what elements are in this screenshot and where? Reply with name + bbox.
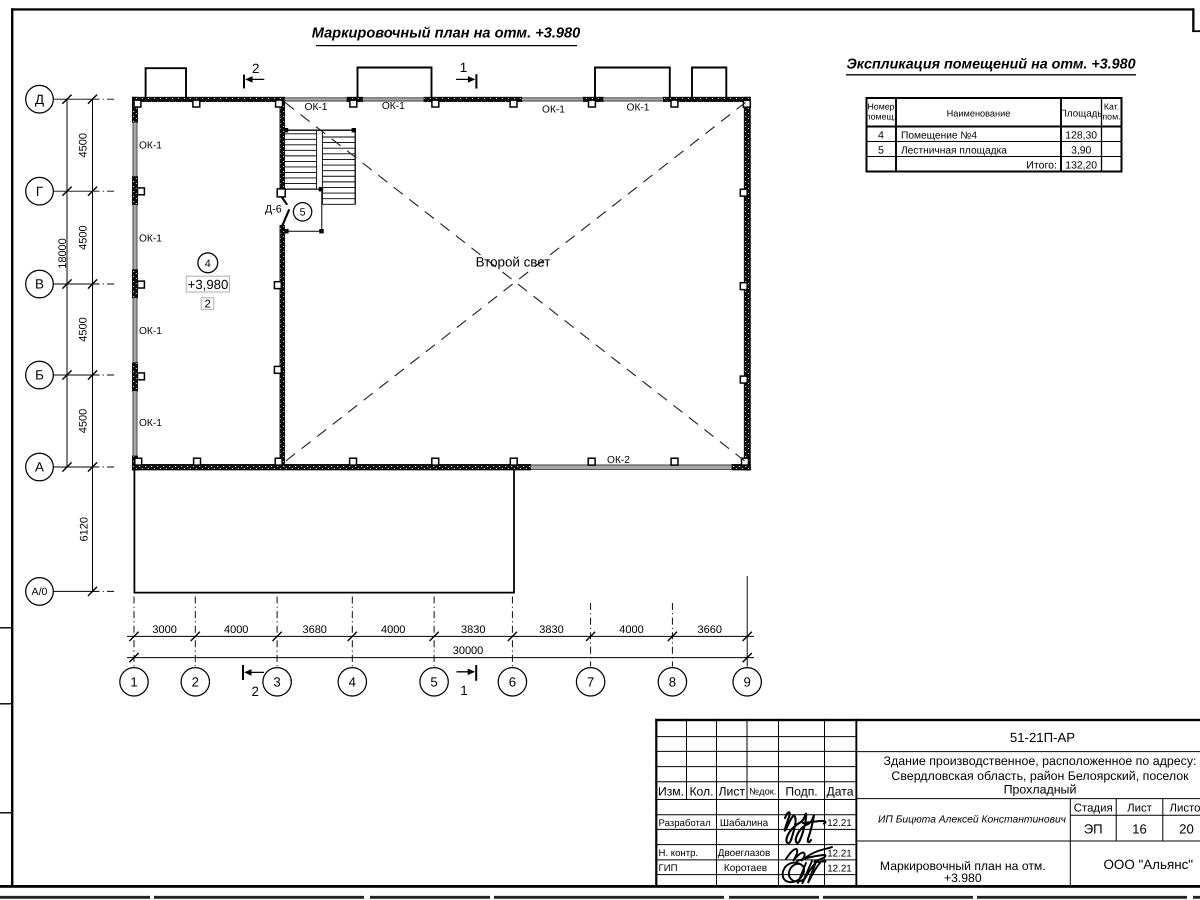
svg-text:4500: 4500 <box>78 225 90 249</box>
svg-text:2: 2 <box>192 675 199 690</box>
svg-text:ОК-1: ОК-1 <box>139 326 162 337</box>
svg-text:Б: Б <box>35 368 44 383</box>
svg-text:1: 1 <box>460 60 467 75</box>
svg-text:16: 16 <box>1132 822 1147 837</box>
svg-text:Разработал: Разработал <box>659 818 711 829</box>
svg-text:6120: 6120 <box>79 517 91 541</box>
svg-text:Кат.: Кат. <box>1104 102 1119 112</box>
svg-text:ОК-1: ОК-1 <box>305 102 328 113</box>
svg-text:Листов: Листов <box>1169 802 1200 814</box>
svg-text:128,30: 128,30 <box>1065 130 1097 141</box>
svg-text:+3,980: +3,980 <box>188 277 229 292</box>
svg-text:12.21: 12.21 <box>827 848 852 859</box>
svg-text:ООО "Альянс": ООО "Альянс" <box>1104 857 1194 872</box>
svg-text:Маркировочный план на отм. +3.: Маркировочный план на отм. +3.980 <box>312 26 581 42</box>
svg-text:ЭП: ЭП <box>1084 822 1103 837</box>
svg-text:ИП Бицюта Алексей Константинов: ИП Бицюта Алексей Константинович <box>878 815 1067 826</box>
svg-text:А: А <box>35 460 44 475</box>
svg-text:4500: 4500 <box>78 133 90 157</box>
svg-text:пом.: пом. <box>1102 112 1120 122</box>
svg-text:Н. контр.: Н. контр. <box>659 848 699 859</box>
svg-text:4: 4 <box>878 129 884 141</box>
svg-text:30000: 30000 <box>453 645 484 657</box>
svg-text:3680: 3680 <box>302 624 326 636</box>
svg-text:ОК-1: ОК-1 <box>542 105 565 116</box>
svg-text:Шабалина: Шабалина <box>720 818 769 829</box>
svg-text:5: 5 <box>430 675 437 690</box>
svg-text:3,90: 3,90 <box>1071 145 1091 156</box>
svg-text:Изм.: Изм. <box>658 784 684 798</box>
svg-text:4500: 4500 <box>78 409 90 433</box>
svg-text:3: 3 <box>273 675 280 690</box>
svg-text:Подп.: Подп. <box>785 784 817 798</box>
svg-text:Лист: Лист <box>1127 802 1153 814</box>
svg-text:12.21: 12.21 <box>827 863 852 874</box>
svg-text:1: 1 <box>460 683 467 698</box>
svg-text:Номер: Номер <box>867 102 894 112</box>
svg-text:помещ.: помещ. <box>866 112 896 122</box>
svg-text:ОК-1: ОК-1 <box>139 418 162 429</box>
svg-text:ГИП: ГИП <box>659 863 678 874</box>
svg-text:+3.980: +3.980 <box>944 871 982 885</box>
svg-text:1: 1 <box>130 675 137 690</box>
svg-text:4500: 4500 <box>78 317 90 341</box>
svg-text:ОК-2: ОК-2 <box>607 455 630 466</box>
svg-text:Наименование: Наименование <box>947 109 1011 119</box>
svg-text:9: 9 <box>744 675 751 690</box>
svg-text:3830: 3830 <box>461 624 485 636</box>
svg-text:6: 6 <box>509 675 516 690</box>
svg-text:Лист: Лист <box>719 784 746 798</box>
svg-text:Второй свет: Второй свет <box>476 254 551 269</box>
svg-text:20: 20 <box>1179 822 1194 837</box>
svg-text:Экспликация помещений на отм.: Экспликация помещений на отм. +3.980 <box>846 56 1135 72</box>
svg-text:Помещение №4: Помещение №4 <box>901 130 977 141</box>
svg-text:2: 2 <box>252 61 259 76</box>
svg-text:8: 8 <box>669 675 676 690</box>
svg-text:Лестничная площадка: Лестничная площадка <box>901 145 1007 156</box>
svg-text:№док.: №док. <box>749 786 776 796</box>
svg-text:3660: 3660 <box>698 624 722 636</box>
svg-text:Дата: Дата <box>827 784 854 798</box>
svg-text:Коротаев: Коротаев <box>724 863 767 874</box>
svg-text:Кол.: Кол. <box>689 784 713 798</box>
svg-text:4000: 4000 <box>381 624 405 636</box>
svg-text:2: 2 <box>251 684 258 699</box>
svg-text:4000: 4000 <box>224 624 248 636</box>
svg-text:18000: 18000 <box>57 238 69 269</box>
svg-text:В: В <box>35 277 44 292</box>
svg-text:Д-6: Д-6 <box>265 203 282 215</box>
svg-text:51-21П-АР: 51-21П-АР <box>1010 730 1075 745</box>
svg-text:ОК-1: ОК-1 <box>627 103 650 114</box>
svg-text:132,20: 132,20 <box>1065 160 1097 171</box>
svg-text:Площадь: Площадь <box>1060 109 1103 120</box>
svg-text:3830: 3830 <box>539 624 563 636</box>
svg-text:А/0: А/0 <box>32 586 48 598</box>
svg-text:3000: 3000 <box>152 624 176 636</box>
svg-text:Двоеглазов: Двоеглазов <box>718 848 771 859</box>
svg-text:Д: Д <box>35 92 44 107</box>
svg-text:Прохладный: Прохладный <box>1004 783 1077 797</box>
svg-text:4: 4 <box>205 258 211 270</box>
svg-text:Свердловская область, район Бе: Свердловская область, район Белоярский, … <box>891 769 1189 783</box>
svg-text:4: 4 <box>349 675 356 690</box>
svg-text:ОК-1: ОК-1 <box>382 101 405 112</box>
svg-text:12.21: 12.21 <box>827 818 852 829</box>
svg-text:Стадия: Стадия <box>1074 802 1113 814</box>
svg-text:5: 5 <box>300 207 306 219</box>
svg-text:ОК-1: ОК-1 <box>139 233 162 244</box>
svg-text:4000: 4000 <box>619 624 643 636</box>
svg-text:5: 5 <box>878 144 884 156</box>
svg-text:7: 7 <box>587 675 594 690</box>
svg-text:2: 2 <box>204 299 210 311</box>
svg-text:Г: Г <box>36 184 43 199</box>
svg-text:ОК-1: ОК-1 <box>139 140 162 151</box>
svg-text:Здание производственное, распо: Здание производственное, расположенное п… <box>884 754 1197 768</box>
svg-text:Итого:: Итого: <box>1026 159 1057 171</box>
